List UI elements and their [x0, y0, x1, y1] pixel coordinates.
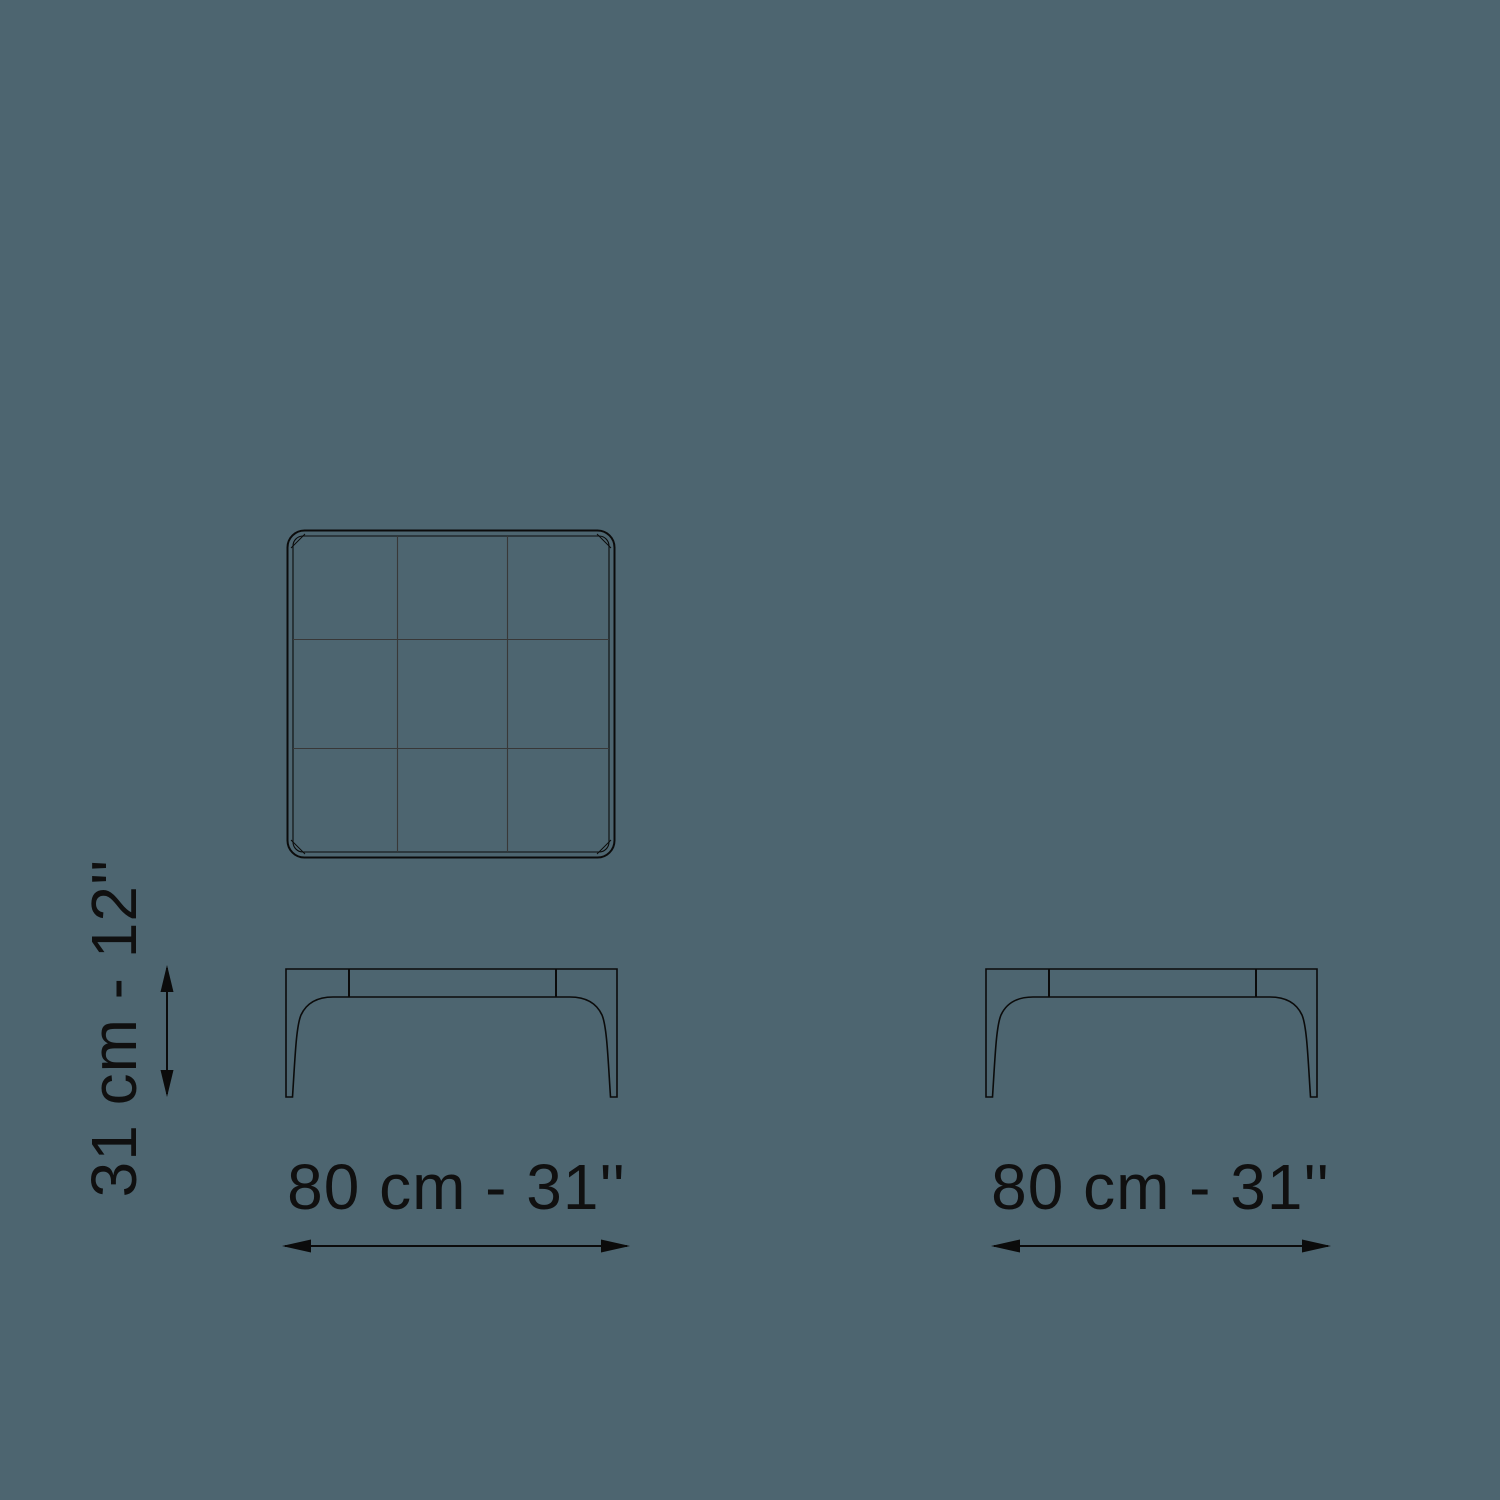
width-dimension-arrow-right-icon — [990, 1237, 1332, 1255]
table-profile-outline — [286, 969, 617, 1097]
top-view-seam-grid — [293, 536, 609, 852]
top-view-outer-edge — [288, 531, 615, 858]
width-dimension-label-right: 80 cm - 31'' — [987, 1155, 1334, 1219]
table-top-view — [286, 529, 616, 859]
table-profile-outline — [986, 969, 1317, 1097]
table-front-view-left — [285, 968, 618, 1098]
top-view-inner-edge — [293, 536, 609, 852]
top-view-corner-details — [291, 534, 611, 854]
width-dimension-arrow-left-icon — [281, 1237, 631, 1255]
height-dimension-label: 31 cm - 12'' — [82, 859, 146, 1198]
dimension-diagram: 31 cm - 12'' 80 cm - 31'' 80 cm - 31'' — [0, 0, 1500, 1500]
table-front-view-right — [985, 968, 1318, 1098]
height-dimension-arrow-icon — [158, 964, 176, 1098]
apron-seam-marks — [349, 969, 556, 997]
width-dimension-label-left: 80 cm - 31'' — [283, 1155, 630, 1219]
apron-seam-marks — [1049, 969, 1256, 997]
